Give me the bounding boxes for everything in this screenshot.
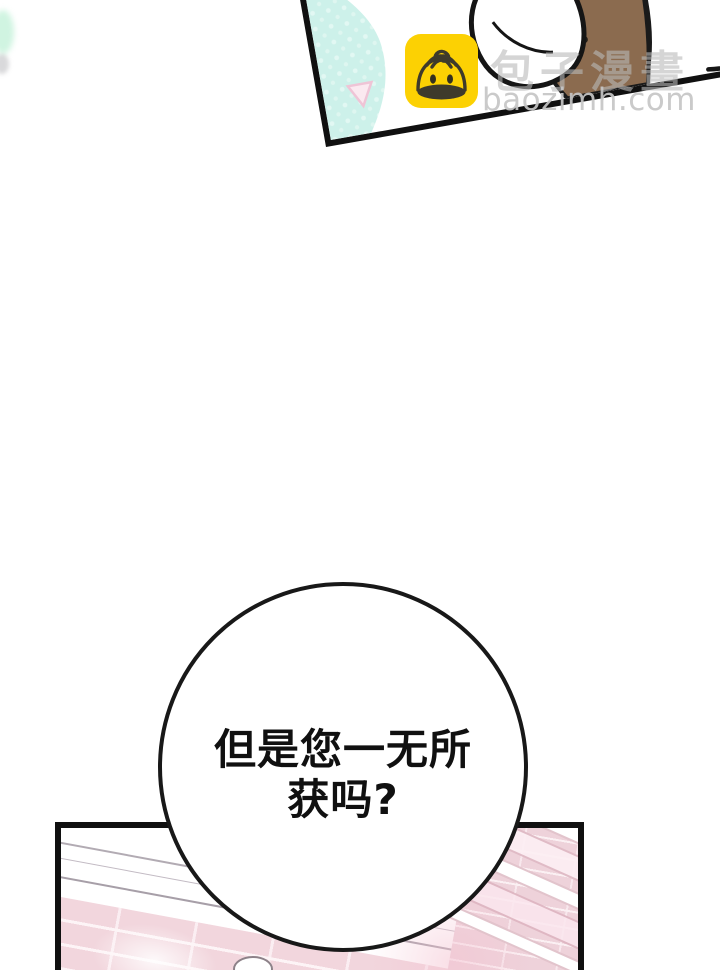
cropped-art-smudge-gray (0, 54, 9, 74)
mint-background-shape (301, 0, 396, 140)
speech-bubble-text-line2: 获吗? (287, 775, 398, 825)
baozi-bun-icon (405, 34, 478, 108)
comic-page: 包子漫畫 baozimh.com 但是您一无所 获吗? (0, 0, 720, 970)
cropped-art-smudge-mint (0, 10, 14, 54)
speech-bubble-text-line1: 但是您一无所 (214, 725, 472, 775)
speech-bubble: 但是您一无所 获吗? (158, 582, 528, 952)
baozi-logo (405, 34, 478, 108)
watermark-domain-text: baozimh.com (482, 82, 696, 118)
